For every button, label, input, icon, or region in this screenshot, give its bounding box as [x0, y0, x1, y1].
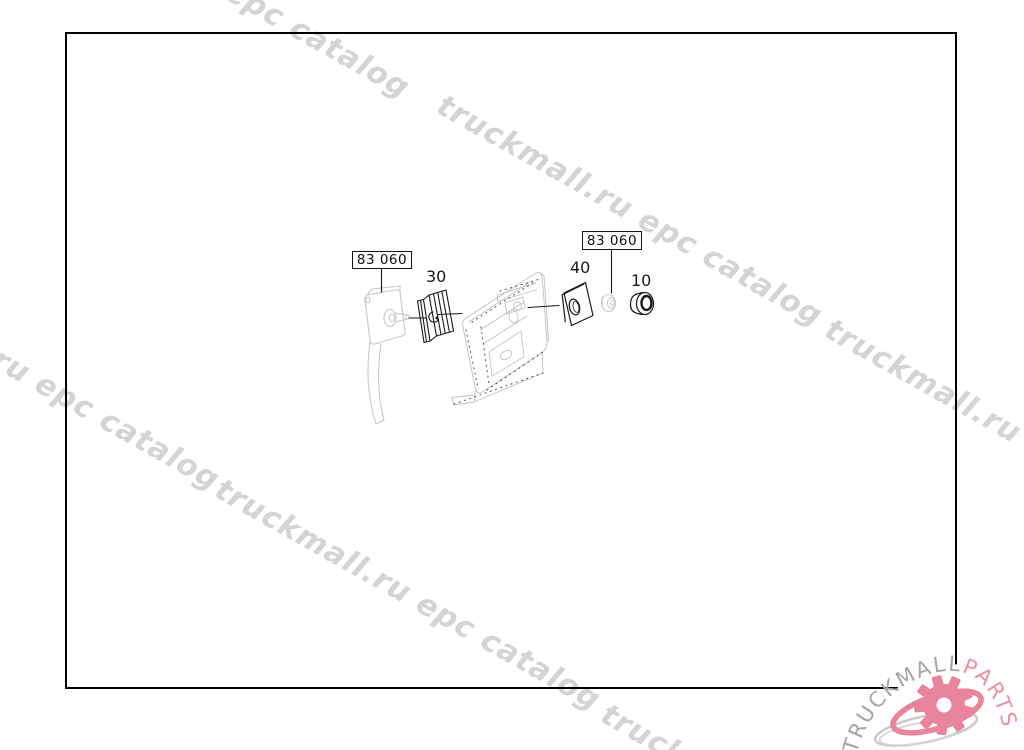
catalog-page: truckmall.ru epc catalog truckmall.ru ep…	[0, 0, 1024, 750]
pillar-trim-drawing	[365, 286, 409, 424]
panel-dotted-lines	[454, 279, 543, 404]
clip-part-30-drawing	[418, 290, 454, 343]
part-number-40: 40	[570, 258, 590, 277]
part-number-30: 30	[426, 267, 446, 286]
ghost-clip-drawing	[602, 295, 616, 312]
dashboard-panel-drawing	[452, 272, 549, 405]
part-number-10: 10	[631, 271, 651, 290]
truckmall-logo: TRUCKMALLPARTS	[838, 651, 1022, 750]
callout-83060-right: 83 060	[582, 231, 642, 250]
plate-part-40-drawing	[562, 283, 593, 326]
parts-diagram: TRUCKMALLPARTS	[0, 0, 1024, 750]
callout-83060-left: 83 060	[352, 251, 412, 269]
page-border	[66, 33, 956, 688]
grommet-part-10-drawing	[630, 293, 653, 315]
